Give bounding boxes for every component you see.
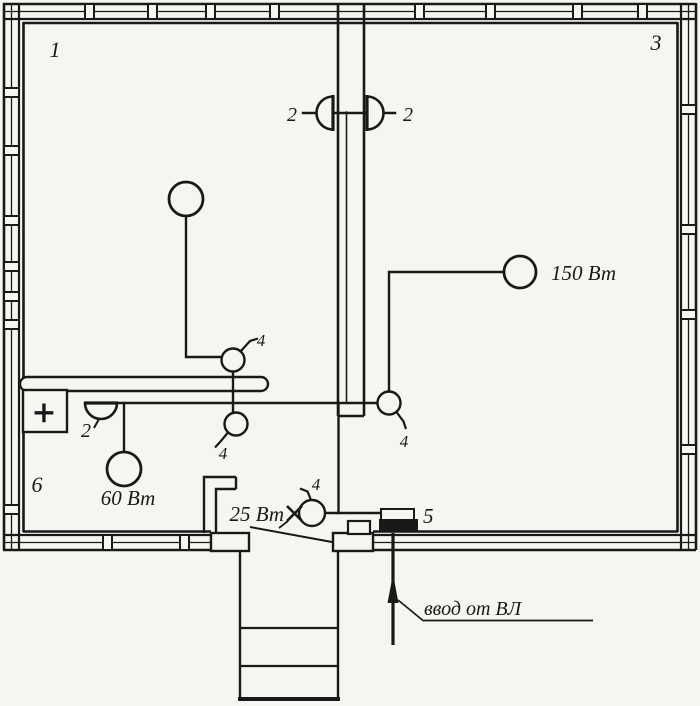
door-jamb-right (333, 533, 373, 551)
stove-box: + (23, 390, 67, 432)
door-jamb-left (211, 533, 249, 551)
lamp-150w-label: 150 Вт (551, 261, 616, 285)
room3-label: 3 (650, 30, 662, 55)
ceiling-lamp-kitchen-60w (107, 452, 141, 486)
switch-room1-label: 4 (257, 331, 266, 350)
service-entry-note: ввод от ВЛ (424, 598, 523, 620)
switch-kitchen-label: 4 (219, 444, 228, 463)
room1-label: 1 (50, 37, 61, 62)
wall-lamp-right-label: 2 (403, 104, 413, 126)
wall-lamp-left-label: 2 (287, 104, 297, 126)
lamp-60w-label: 60 Вт (101, 486, 156, 510)
meter-label: 5 (423, 504, 434, 528)
ceiling-lamp-room3-150w (504, 256, 536, 288)
lamp-25w-label: 25 Вт (230, 502, 285, 526)
floor-plan-wiring-diagram: + (0, 0, 700, 706)
switch-entry-label: 4 (312, 475, 321, 494)
stove-plus-symbol: + (31, 395, 56, 430)
meter-switchboard (379, 509, 418, 532)
plan-canvas: + (0, 0, 700, 706)
paper-background (0, 0, 700, 706)
door-jamb-block (348, 521, 370, 534)
wall-lamp-kitchen-label: 2 (81, 420, 91, 442)
room6-label: 6 (32, 472, 43, 497)
ceiling-lamp-room1 (169, 182, 203, 216)
switch-room3-label: 4 (400, 432, 409, 451)
